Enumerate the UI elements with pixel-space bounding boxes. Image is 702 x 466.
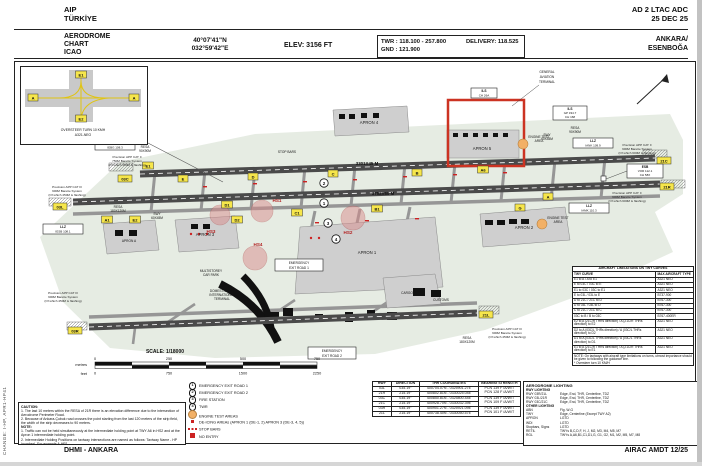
table-row: D1 to A (03C/L THRs direction) / A (03C/…: [573, 336, 694, 345]
stop-bar-symbol: [188, 428, 197, 430]
arp-longitude: 032°59'42"E: [175, 45, 245, 52]
navaid-ils-gp: ILS GP 334.7 CH 168: [553, 106, 587, 120]
caution-line-2: 2. Because of Ankara-Çubuk road crosses …: [21, 417, 183, 425]
inset-caption-2: A321-NEO: [75, 133, 92, 137]
page-edge-bottom: [0, 462, 702, 466]
customs-label: CUSTOMS: [433, 298, 449, 302]
svg-text:ILS: ILS: [482, 89, 487, 93]
change-side-note: CHANGE: I-HP, APR1-HP41: [2, 345, 12, 455]
amendment-footer: AIRAC AMDT 12/25: [488, 447, 688, 454]
marker-3: 3: [327, 221, 330, 226]
rwy-21l: 21L: [483, 313, 490, 318]
oversteer-inset: E1 A A E2 OVERSTEER TURN 10 KMH A321-NEO: [20, 66, 148, 145]
legend-item-fire-station: 3FIRE STATION: [186, 396, 368, 403]
rwy-21c: 21C: [660, 159, 667, 164]
aerodrome-name: ESENBOĞA: [488, 45, 688, 52]
header-rule-2: [14, 58, 688, 59]
twy-chip-a6: A6: [480, 168, 486, 173]
svg-text:CH 26A: CH 26A: [479, 94, 490, 98]
marker-1: 1: [323, 201, 326, 206]
deice-symbol: [191, 420, 194, 423]
inset-a-right: A: [133, 96, 136, 101]
twy-chip-d2: D2: [234, 218, 240, 223]
limitations-note: NOTE: On taxiways with aircraft type lim…: [573, 354, 694, 366]
arp-latitude: 40°07'41"N: [175, 37, 245, 44]
runway-length-top: 3301X45 M: [356, 161, 379, 166]
legend-item-exit1: 1EMERGENCY EXIT ROAD 1: [186, 382, 368, 389]
twy-chip-c1: C1: [294, 211, 300, 216]
hotspot-hs1: HS1: [273, 198, 282, 203]
svg-text:EMERGENCY: EMERGENCY: [289, 261, 310, 265]
car-park-label-2: CAR PARK: [203, 273, 220, 277]
svg-text:AVIATION: AVIATION: [540, 75, 555, 79]
svg-text:0: 0: [94, 372, 96, 376]
elevation: ELEV: 3156 FT: [284, 42, 332, 49]
scale-title: SCALE: 1/18000: [146, 349, 184, 355]
table-row: E1 to A (21C/R THRs direction) / A (21C/…: [573, 345, 694, 354]
apron4-label: APRON 4: [360, 120, 379, 125]
twy-chip-d: D: [252, 175, 255, 180]
navaid-ils-2: ILS CH 26A: [471, 88, 497, 98]
aerodrome-chart-page: CHANGE: I-HP, APR1-HP41 AIP TÜRKİYE AD 2…: [0, 0, 702, 466]
twy-chip-c: C: [332, 172, 335, 177]
svg-text:IESB 108.1: IESB 108.1: [55, 230, 71, 234]
svg-text:250: 250: [166, 357, 172, 361]
legend-item-exit2: 2EMERGENCY EXIT ROAD 2: [186, 389, 368, 396]
twy-chip-a: A: [547, 195, 550, 200]
aip-label: AIP: [64, 5, 77, 14]
twy-chip-e1: E1: [146, 164, 152, 169]
twy-chip-e2: E2: [133, 218, 139, 223]
north-arrow-icon: [637, 74, 669, 104]
inset-a-left: A: [32, 96, 35, 101]
page-edge-right: [697, 0, 702, 466]
svg-text:(Of which 450M is flashing): (Of which 450M is flashing): [108, 163, 145, 167]
no-entry-symbol: [190, 433, 195, 438]
gnd-frequency: GND : 121.900: [381, 47, 420, 53]
svg-text:AREA: AREA: [554, 220, 564, 224]
svg-text:CH 58X: CH 58X: [640, 173, 651, 177]
svg-text:(Of which 600M is flashing): (Of which 600M is flashing): [618, 151, 655, 155]
country-label: TÜRKİYE: [64, 14, 97, 23]
svg-text:(Of which 450M is flashing): (Of which 450M is flashing): [488, 335, 525, 339]
svg-text:1500: 1500: [239, 372, 247, 376]
svg-text:500: 500: [240, 357, 246, 361]
runway-table: RWY DIRECTION THR COORDINATES BEARING ST…: [372, 381, 521, 417]
rwy-03r: 03R: [71, 329, 78, 334]
publisher-footer: DHMI - ANKARA: [64, 447, 118, 454]
twy-chip-b1: B1: [374, 207, 380, 212]
svg-text:EXIT ROAD 2: EXIT ROAD 2: [322, 354, 342, 358]
apron-a-label: APRON A: [122, 239, 137, 243]
caution-line-1: 1. The last 10 meters within the RESA of…: [21, 409, 183, 417]
legend-item-twr: 4TWR: [186, 403, 368, 410]
twy-chip-g: G: [518, 206, 521, 211]
note-line-1: 1. Traffic can not be held simultaneousl…: [21, 429, 183, 437]
twr-frequency: TWR : 118.100 - 257.800: [381, 39, 446, 45]
scale-feet-label: feet: [81, 372, 88, 376]
svg-text:2250: 2250: [313, 372, 321, 376]
oversteer-diagram: E1 A A E2 OVERSTEER TURN 10 KMH A321-NEO: [21, 67, 145, 142]
engine-test-symbol: [188, 410, 197, 419]
note-line-2: 2. Intermediate Holding Positions on tax…: [21, 438, 183, 446]
legend-item-no-entry: NO ENTRY: [186, 433, 368, 440]
twy-chip-d1: D1: [224, 203, 230, 208]
svg-text:IEBG 108.3: IEBG 108.3: [107, 146, 123, 150]
svg-text:IAMK 110.3: IAMK 110.3: [581, 209, 597, 213]
svg-text:(Of which 450M is flashing): (Of which 450M is flashing): [48, 193, 85, 197]
terminal-label-3: TERMINAL: [214, 297, 230, 301]
table-row: D2 to A (03C/L THRs direction) / A (03C/…: [573, 328, 694, 337]
lighting-box: AERODROME LIGHTING RWY LIGHTING RWY 03R/…: [523, 381, 700, 446]
svg-text:TERMINAL: TERMINAL: [539, 80, 555, 84]
chart-title-2: CHART: [64, 41, 89, 48]
svg-text:LLZ: LLZ: [590, 139, 596, 143]
caution-title: CAUTION:: [21, 405, 38, 409]
legend-item-stop-bars: STOP BARS: [186, 426, 368, 433]
svg-text:0: 0: [94, 357, 96, 361]
doc-ref: AD 2 LTAC ADC: [488, 5, 688, 14]
apron1-label: APRON 1: [358, 250, 377, 255]
twy-chip-e: E: [182, 177, 185, 182]
svg-text:60X45M: 60X45M: [151, 216, 163, 220]
inset-e1: E1: [79, 73, 85, 78]
svg-text:LLZ: LLZ: [60, 225, 66, 229]
hotspot-hs4: HS4: [254, 242, 263, 247]
svg-text:GENERAL: GENERAL: [539, 70, 554, 74]
legend-item-deice: DE-ICING AREAs (APRON 1 (DE-1, 2) APRON …: [186, 419, 368, 426]
svg-text:750: 750: [166, 372, 172, 376]
svg-text:(Of which 450M is flashing): (Of which 450M is flashing): [44, 299, 81, 303]
twy-chip-b: B: [416, 171, 419, 176]
navaid-llz-iesb: LLZ IESB 108.1: [43, 224, 83, 234]
cargo-label: CARGO: [401, 291, 413, 295]
inset-e2: E2: [79, 117, 85, 122]
map-legend: 1EMERGENCY EXIT ROAD 1 2EMERGENCY EXIT R…: [186, 382, 368, 440]
chart-title-1: AERODROME: [64, 33, 110, 40]
chart-title-3: ICAO: [64, 49, 82, 56]
apron3-label: APRON 3: [196, 232, 215, 237]
aircraft-limitations-table: AIRCRAFT LIMITATIONS ON TWY CURVES TWY C…: [572, 266, 694, 366]
svg-text:90X90M: 90X90M: [139, 149, 151, 153]
svg-text:LLZ: LLZ: [586, 204, 592, 208]
svg-text:180X120M: 180X120M: [459, 340, 475, 344]
scale-metres-label: metres: [75, 363, 87, 367]
rwy-03c: 03C: [121, 177, 128, 182]
svg-text:EMERGENCY: EMERGENCY: [322, 349, 343, 353]
svg-text:180X120M: 180X120M: [110, 209, 126, 213]
stop-bars-label: STOP BARS: [278, 150, 296, 154]
header-rule-1: [14, 29, 688, 30]
inset-caption-1: OVERSTEER TURN 10 KMH: [61, 128, 106, 132]
marker-4: 4: [335, 237, 338, 242]
caution-box: CAUTION: 1. The last 10 meters within th…: [18, 402, 186, 445]
svg-text:CH 168: CH 168: [565, 115, 576, 119]
legend-item-engine-test: ENGINE TEST AREAS: [186, 410, 368, 419]
svg-text:60X45M: 60X45M: [541, 137, 553, 141]
svg-text:(Of which 600M is flashing): (Of which 600M is flashing): [608, 199, 645, 203]
svg-text:750: 750: [314, 357, 320, 361]
city-name: ANKARA/: [488, 36, 688, 43]
hotspot-hs2: HS2: [344, 230, 353, 235]
svg-text:EXIT ROAD 1: EXIT ROAD 1: [289, 266, 309, 270]
effective-date: 25 DEC 25: [488, 14, 688, 23]
navaid-llz-iamk: LLZ IAMK 110.3: [569, 203, 609, 213]
table-row: E2 to A (21C/R THRs direction) / A (21C/…: [573, 319, 694, 328]
rwy-03l: 03L: [57, 205, 64, 210]
emergency-exit-1: EMERGENCY EXIT ROAD 1: [275, 259, 323, 271]
runway-length-mid: 3752X60 M: [372, 191, 395, 196]
navaid-llz-iank: LLZ IANK 109.9: [573, 138, 613, 148]
marker-2: 2: [323, 181, 326, 186]
svg-text:IANK 109.9: IANK 109.9: [585, 144, 601, 148]
apron2-label: APRON 2: [515, 225, 534, 230]
svg-text:90X90M: 90X90M: [569, 130, 581, 134]
twy-chip-a1: A1: [104, 218, 110, 223]
lighting-row: RGLTWYs A,A6,B1,C1,D1,G, G1, G2, M1, M2,…: [526, 433, 697, 437]
apron5-label: APRON 5: [473, 146, 492, 151]
rwy-21r: 21R: [663, 185, 670, 190]
